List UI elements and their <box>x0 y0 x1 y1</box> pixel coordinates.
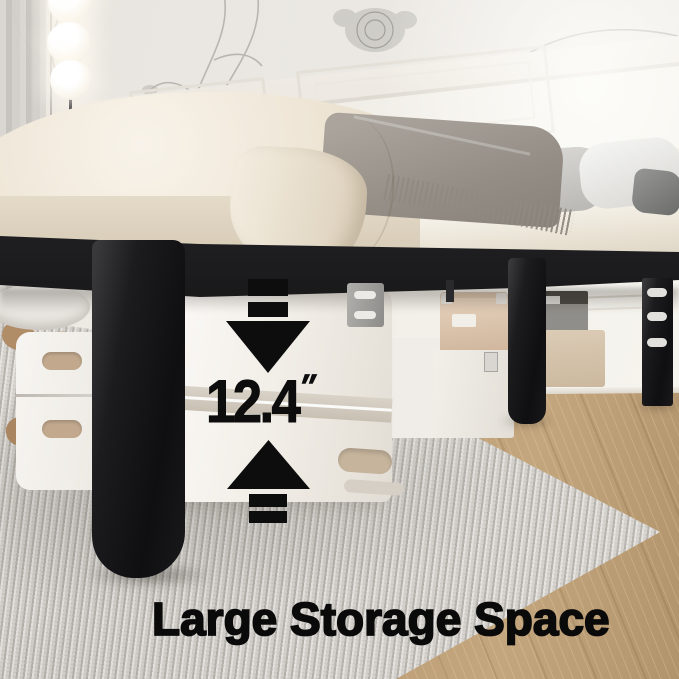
bracket-slot <box>354 291 376 299</box>
down-arrow-shaft-bar <box>248 279 288 296</box>
window-frame-line <box>50 0 52 118</box>
lamp-globe <box>47 22 91 64</box>
down-arrow-shaft-bar <box>248 302 288 317</box>
suitcase-handle <box>42 420 82 438</box>
leg-vent-slot <box>647 338 667 347</box>
box-label <box>452 314 476 327</box>
leg-vent-slot <box>647 312 667 321</box>
up-arrow-shaft-bar <box>249 494 287 507</box>
bed-leg-front-left <box>92 240 185 578</box>
suitcase-handle <box>42 352 82 370</box>
measurement-value: 12.4 <box>206 368 298 435</box>
pillow-dark <box>631 168 679 217</box>
trunk-latch <box>484 352 498 372</box>
lamp-globe <box>50 60 92 100</box>
leg-vent-slot <box>647 288 667 297</box>
bracket-slot <box>354 311 376 319</box>
frame-bracket-small <box>446 280 454 302</box>
frame-bracket <box>347 283 384 327</box>
clearance-measurement: 12.4″ <box>206 372 314 432</box>
bedroom-product-photo: 12.4″ Large Storage Space <box>0 0 679 679</box>
caption-text: Large Storage Space <box>152 596 610 642</box>
up-arrow-shaft-bar <box>249 511 287 523</box>
suitcase-handle <box>337 447 393 475</box>
bed-leg-middle <box>508 258 546 424</box>
